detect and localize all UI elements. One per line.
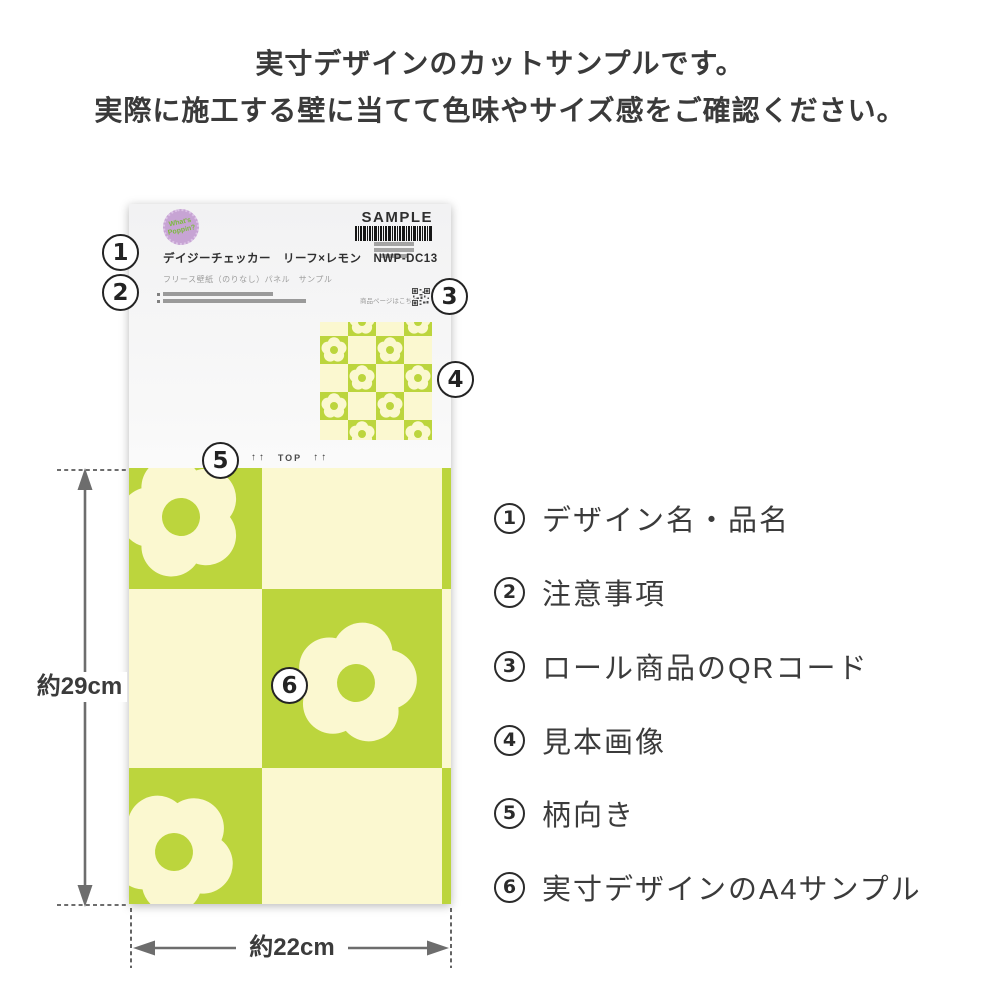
legend-item-5: 5 柄向き [494, 795, 635, 831]
orientation-top-label: TOP [278, 453, 302, 463]
qr-code [412, 288, 430, 306]
redacted-note-line [157, 292, 273, 296]
barcode-caption-bar [374, 242, 414, 246]
legend-number: 6 [494, 872, 525, 903]
card-label-area: What's Poppin? SAMPLE [129, 204, 451, 468]
legend-label: 注意事項 [542, 571, 666, 613]
callout-1: 1 [102, 234, 139, 271]
redacted-note-line [157, 299, 306, 303]
up-arrows-icon: ↑↑ [313, 452, 329, 463]
barcode [355, 226, 433, 241]
legend-item-3: 3 ロール商品のQRコード [494, 648, 869, 684]
legend-label: デザイン名・品名 [542, 497, 790, 539]
product-subtitle: フリース壁紙（のりなし）パネル サンプル [163, 274, 332, 285]
legend-item-4: 4 見本画像 [494, 722, 666, 758]
legend-number: 1 [494, 503, 525, 534]
header-line-2: 実際に施工する壁に当てて色味やサイズ感をご確認ください。 [0, 87, 1000, 134]
brand-logo: What's Poppin? [160, 206, 203, 249]
callout-2: 2 [102, 274, 139, 311]
callout-4: 4 [437, 361, 474, 398]
callout-5: 5 [202, 442, 239, 479]
pattern-swatch-image [320, 322, 432, 440]
legend-item-2: 2 注意事項 [494, 574, 666, 610]
page: 実寸デザインのカットサンプルです。 実際に施工する壁に当てて色味やサイズ感をご確… [0, 0, 1000, 1000]
header: 実寸デザインのカットサンプルです。 実際に施工する壁に当てて色味やサイズ感をご確… [0, 40, 1000, 134]
callout-3: 3 [431, 278, 468, 315]
header-line-1: 実寸デザインのカットサンプルです。 [0, 40, 1000, 87]
legend-label: 見本画像 [542, 719, 666, 761]
callout-6: 6 [271, 667, 308, 704]
legend-item-6: 6 実寸デザインのA4サンプル [494, 869, 922, 905]
legend-label: 柄向き [542, 792, 635, 834]
legend-number: 2 [494, 577, 525, 608]
sample-card: What's Poppin? SAMPLE [129, 204, 451, 904]
product-title: デイジーチェッカー リーフ×レモン NWP-DC13 [163, 250, 438, 266]
orientation-row: ↑↑ TOP ↑↑ [129, 452, 451, 463]
legend-number: 3 [494, 651, 525, 682]
up-arrows-icon: ↑↑ [251, 452, 267, 463]
width-dimension-label: 約22cm [236, 933, 348, 963]
legend-label: 実寸デザインのA4サンプル [542, 866, 922, 908]
qr-caption: 商品ページはこちら [360, 295, 418, 305]
height-dimension-label: 約29cm [32, 672, 127, 702]
legend-number: 4 [494, 725, 525, 756]
sample-label: SAMPLE [361, 209, 433, 226]
legend-number: 5 [494, 798, 525, 829]
legend-label: ロール商品のQRコード [542, 645, 869, 687]
legend-item-1: 1 デザイン名・品名 [494, 500, 790, 536]
